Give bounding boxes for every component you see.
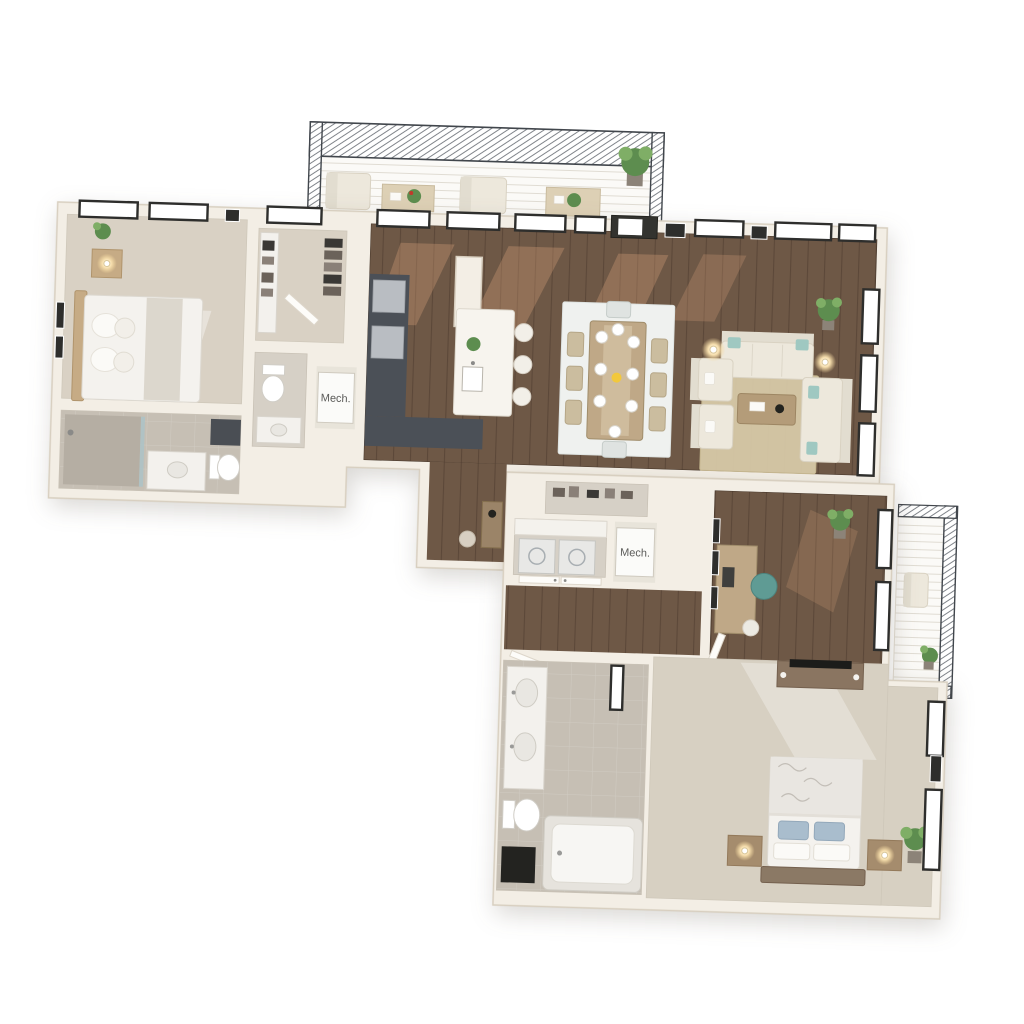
window [610, 666, 623, 710]
walk-in-closet-1 [256, 228, 347, 343]
wall-art [56, 302, 65, 328]
office-chair [751, 573, 778, 600]
window [877, 510, 893, 568]
coat-closet [545, 481, 648, 516]
balcony-top [308, 122, 665, 223]
window [860, 355, 878, 411]
balcony-railing [308, 122, 323, 212]
floor-plan: Mech. [36, 114, 969, 919]
mech-label-1: Mech. [321, 392, 351, 405]
coat-closet-floor [545, 481, 648, 516]
shower [63, 414, 141, 486]
toilet [209, 454, 240, 481]
window [447, 212, 499, 230]
window [575, 216, 605, 233]
window [149, 203, 207, 221]
coffee-table [737, 393, 796, 425]
bed [72, 291, 203, 405]
laundry-counter [515, 518, 607, 537]
balcony-right [893, 505, 958, 699]
bed [761, 756, 869, 885]
double-vanity [504, 666, 548, 789]
window [927, 702, 945, 756]
window [874, 582, 890, 650]
floor-plan-canvas: Mech. [0, 0, 1024, 1024]
wall-art [55, 336, 64, 358]
floor-plan-svg: Mech. [0, 0, 1024, 1024]
dryer [558, 540, 595, 575]
armchair [690, 404, 733, 449]
refrigerator [372, 280, 405, 313]
bath-mat [501, 846, 536, 883]
console-table [481, 501, 502, 548]
bedroom-1 [54, 214, 248, 406]
chaise-lounge [460, 177, 507, 214]
window [267, 207, 321, 225]
entry-hall [427, 462, 507, 562]
open-plan-area [364, 224, 877, 476]
wall-art [930, 756, 942, 782]
headboard [761, 866, 865, 885]
chaise-lounge [326, 172, 371, 209]
kitchen-island [453, 309, 514, 417]
balcony-table [382, 184, 435, 212]
mech-closet-2: Mech. [613, 522, 657, 583]
pillow [773, 843, 809, 860]
sofa [800, 377, 853, 463]
bedroom-2 [646, 655, 938, 907]
entry-door [611, 215, 658, 238]
toilet [262, 364, 285, 402]
sink [462, 367, 483, 392]
laptop [722, 567, 735, 587]
pillow [778, 821, 809, 840]
bathroom-1 [59, 410, 241, 494]
wall-art [665, 223, 685, 238]
balcony-railing [898, 505, 956, 519]
bar-stools [513, 323, 534, 406]
stool [742, 620, 758, 636]
nightstand [867, 840, 902, 871]
kitchen-counter [364, 416, 483, 450]
window [79, 201, 137, 219]
toilet [502, 798, 540, 831]
sofa [721, 331, 814, 380]
corridor-floor [504, 585, 702, 655]
window [839, 225, 875, 242]
bathtub [542, 816, 642, 893]
mech-closet-1: Mech. [315, 366, 357, 429]
dining-area [558, 300, 675, 459]
bathroom-2 [496, 660, 648, 894]
hanging-clothes [323, 238, 343, 296]
window [862, 289, 880, 343]
window [775, 223, 831, 241]
stool [459, 531, 475, 547]
armchair [690, 358, 733, 401]
window [923, 790, 942, 870]
vanity [147, 451, 206, 491]
office [705, 491, 886, 675]
linen-cabinet [210, 419, 241, 446]
window [858, 423, 876, 475]
balcony-table [546, 187, 601, 217]
powder-room [252, 352, 307, 448]
mech-label-2: Mech. [620, 547, 650, 560]
vanity [256, 416, 301, 443]
nightstand [727, 835, 762, 866]
oven [371, 326, 404, 359]
book [750, 402, 765, 411]
balcony-chair [903, 573, 928, 608]
wall-art [225, 209, 239, 221]
window [377, 210, 429, 228]
pillow [813, 844, 849, 861]
tv-console [777, 659, 864, 690]
nightstand [91, 249, 122, 278]
washer [518, 539, 555, 574]
balcony-railing [649, 133, 664, 223]
window [515, 214, 565, 232]
wall-art [751, 226, 767, 239]
window [695, 220, 743, 237]
pillow [814, 822, 845, 841]
